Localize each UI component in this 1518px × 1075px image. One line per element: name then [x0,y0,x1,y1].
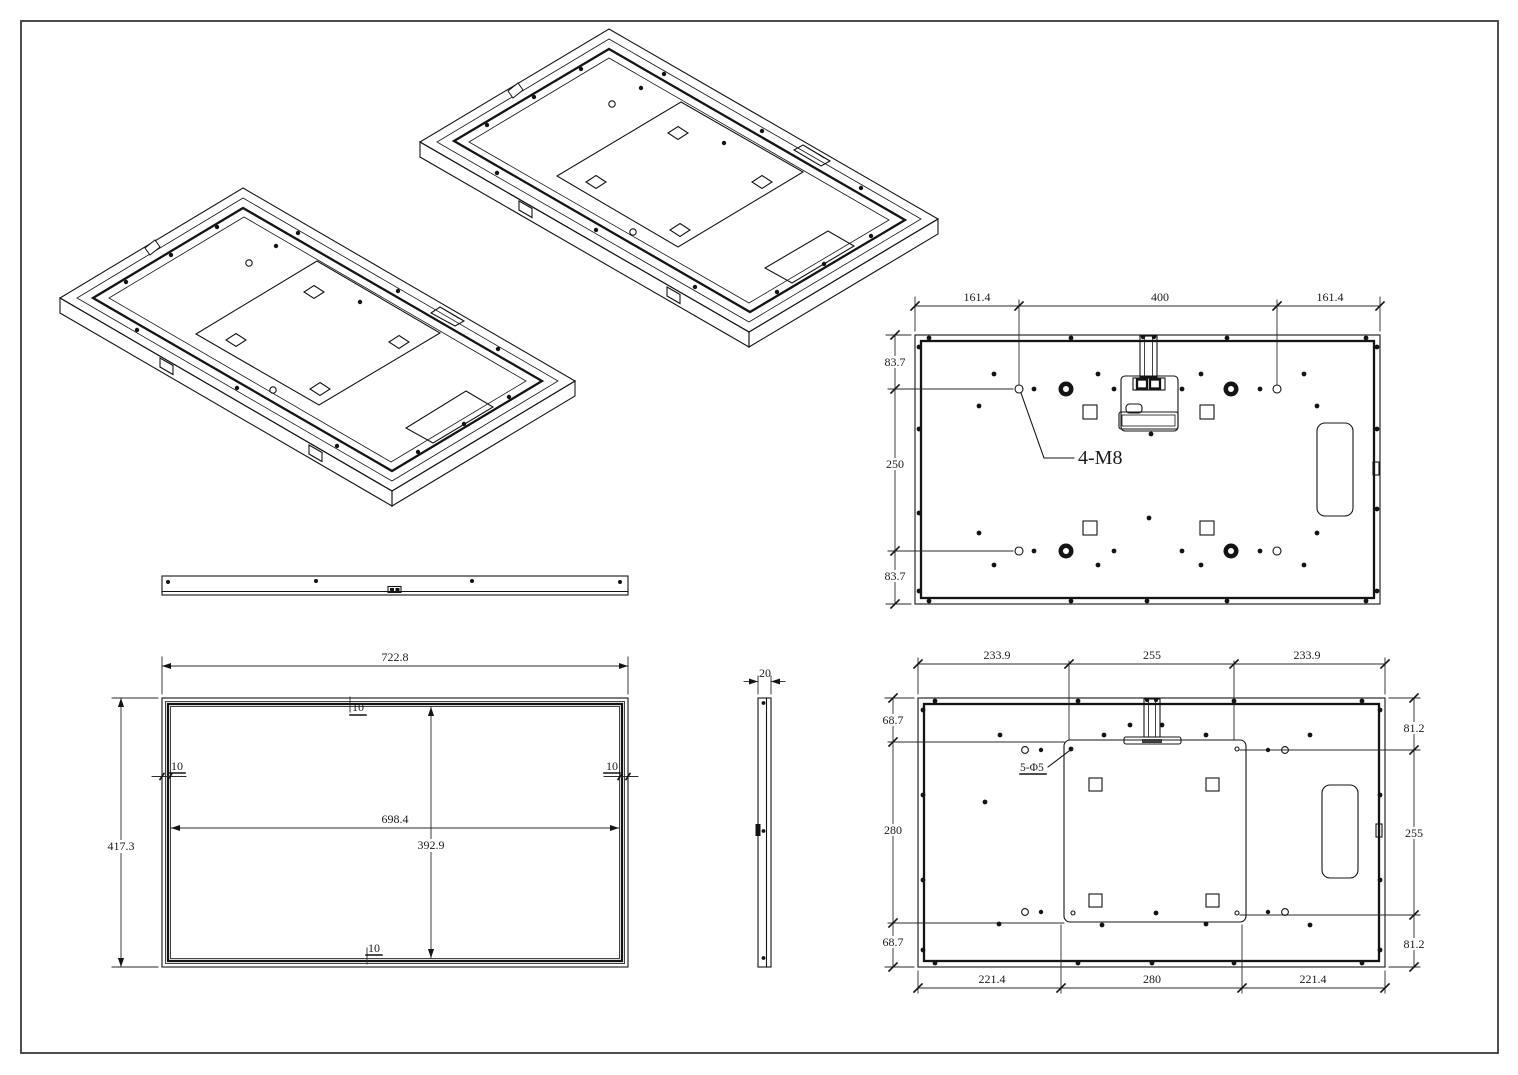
phi5-holes [1022,747,1289,916]
dim-top-right: 233.9 [1294,648,1321,662]
dim-bezel-top: 10 [352,700,364,714]
thread-label: 4-M8 [1078,447,1122,469]
dim-bezel-right: 10 [606,759,618,773]
iso-view-rear-left [60,188,575,506]
dim-bezel-left: 10 [171,759,183,773]
sheet-border [21,21,1498,1053]
dim-thickness: 20 [759,666,771,680]
dim-top-center: 400 [1151,290,1169,304]
side-view-right-edge: 20 [744,666,785,967]
dim-top-left: 233.9 [984,648,1011,662]
dim-left-mid: 250 [886,457,904,471]
dim-top-center: 255 [1143,648,1161,662]
screw-dots [917,335,1380,604]
dim-top-left: 161.4 [964,290,991,304]
screw-dots [485,67,873,294]
grommets [1059,382,1239,559]
stand-bracket [1119,336,1178,431]
iso-view-rear-right [420,29,938,347]
dim-top-right: 161.4 [1317,290,1344,304]
screw-dots [124,225,511,454]
dim-inner-height: 392.9 [418,838,445,852]
dim-left-top: 83.7 [885,355,906,369]
handle-cutout [1317,423,1353,516]
dim-bottom-center: 280 [1143,972,1161,986]
dim-right-bottom: 81.2 [1404,937,1425,951]
back-view-mount-plate: 233.9 255 233.9 68.7 280 68.7 81.2 255 8… [876,648,1431,993]
vesa-holes [1015,385,1281,555]
handle-cutout [1322,785,1358,878]
dim-bezel-bottom: 10 [368,941,380,955]
leader-line [1048,751,1069,767]
stand-bracket [1124,699,1181,744]
dim-bottom-left: 221.4 [979,972,1006,986]
dim-inner-width: 698.4 [382,812,409,826]
leader-line [1021,393,1074,458]
side-view-top-edge [162,576,628,595]
back-view-vesa: 161.4 400 161.4 83.7 250 83.7 4-M8 [878,290,1384,608]
dim-right-top: 81.2 [1404,721,1425,735]
dim-outer-width: 722.8 [382,650,409,664]
dim-left-bottom: 83.7 [885,569,906,583]
hole-label: 5-Φ5 [1020,762,1044,774]
dim-left-mid: 280 [884,823,902,837]
drawing-sheet: 722.8 417.3 698.4 392.9 10 10 10 10 [0,0,1518,1075]
screw-dots [921,698,1383,965]
connector-tab [756,824,761,836]
dim-left-top: 68.7 [883,713,904,727]
cad-canvas: 722.8 417.3 698.4 392.9 10 10 10 10 [0,0,1518,1075]
dim-outer-height: 417.3 [108,839,135,853]
dim-left-bottom: 68.7 [883,935,904,949]
dim-bottom-right: 221.4 [1300,972,1327,986]
dim-right-mid: 255 [1405,826,1423,840]
front-view: 722.8 417.3 698.4 392.9 10 10 10 10 [102,650,638,967]
